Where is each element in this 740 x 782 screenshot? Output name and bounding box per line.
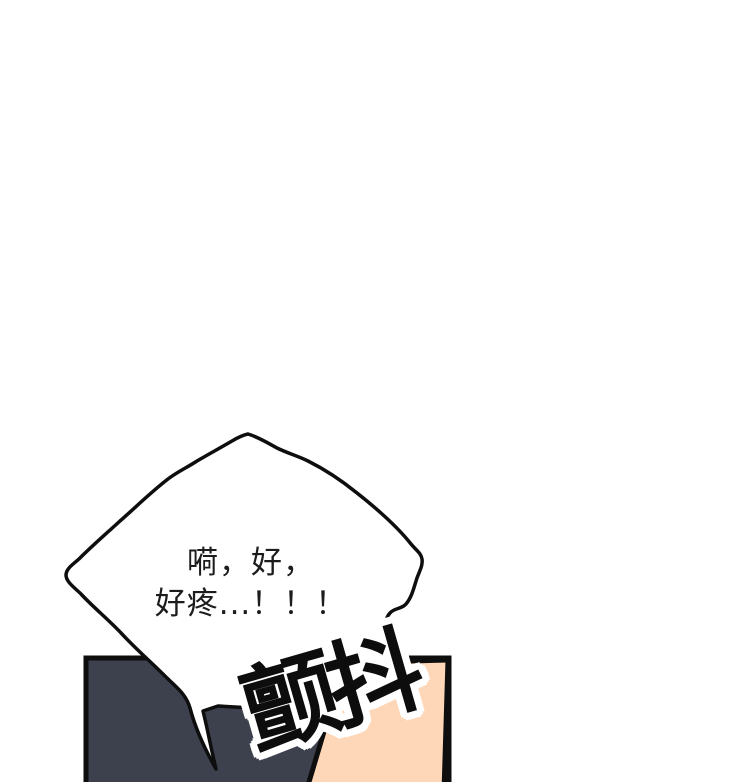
comic-panel: 嗬，好， 好疼...！！！ 颤抖 xyxy=(0,0,740,782)
bubble-text-line-1: 嗬，好， xyxy=(128,543,374,584)
